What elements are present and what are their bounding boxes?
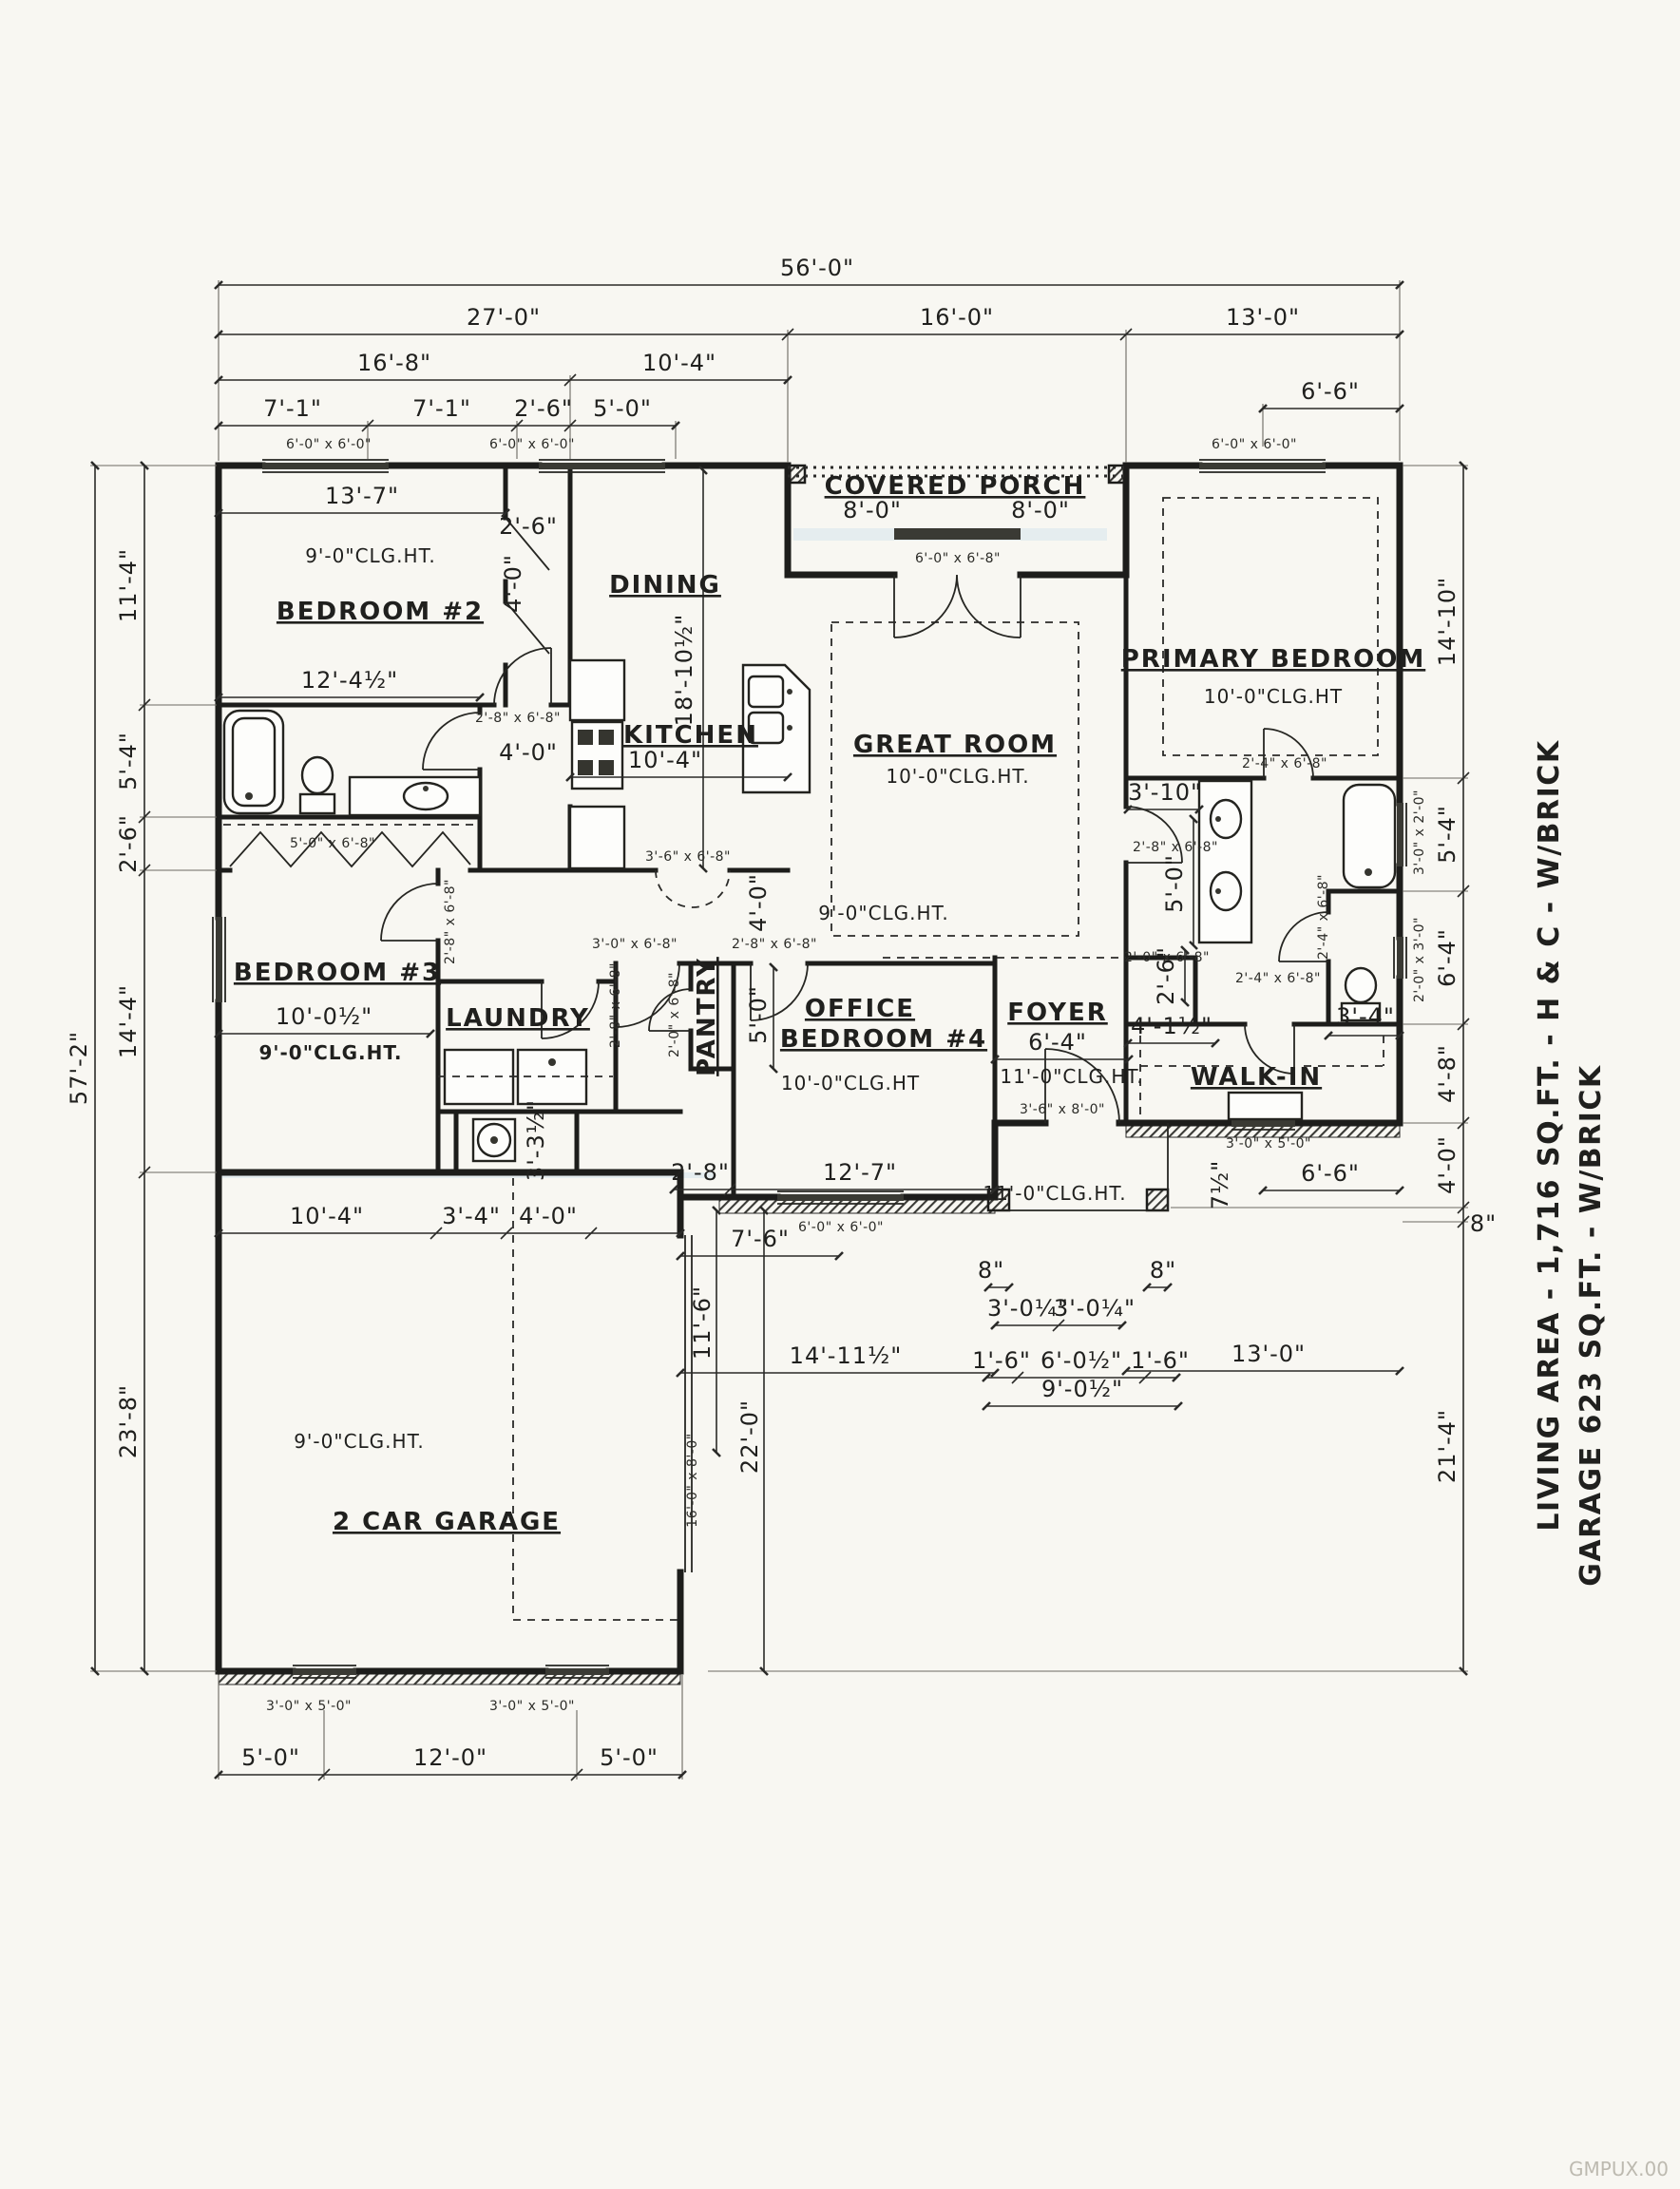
- plan-label: 27'-0": [467, 304, 541, 331]
- plan-label: 11'-0"CLG.HT.: [983, 1182, 1126, 1205]
- plan-label: WALK-IN: [1191, 1063, 1322, 1092]
- plan-label: 2'-8" x 6'-8": [608, 962, 623, 1048]
- plan-label: 12'-0": [413, 1744, 487, 1771]
- window: [1199, 460, 1326, 472]
- plan-label: LAUNDRY: [446, 1004, 590, 1033]
- double-vanity: [1199, 781, 1251, 942]
- plan-label: BEDROOM #4: [780, 1025, 987, 1054]
- plan-label: 4'-0": [1434, 1135, 1460, 1194]
- side-notes: LIVING AREA - 1,716 SQ.FT. - H & C - W/B…: [1533, 739, 1608, 1587]
- porch-door-header: [894, 528, 1021, 540]
- plan-label: 13'-7": [325, 483, 399, 509]
- kitchen-arch: [656, 870, 730, 907]
- plan-label: 4'-0": [499, 739, 558, 766]
- plan-label: KITCHEN: [623, 721, 758, 750]
- plan-label: 14'-11½": [790, 1342, 903, 1369]
- plan-label: 3'-10": [1128, 779, 1202, 806]
- plan-label: 11'-6": [689, 1285, 716, 1360]
- plan-label: 3'-4": [442, 1203, 501, 1229]
- plan-label: 2 CAR GARAGE: [333, 1508, 561, 1536]
- plan-label: PANTRY: [693, 957, 721, 1076]
- plan-label: 10'-4": [628, 747, 702, 773]
- plan-label: 8": [978, 1257, 1004, 1284]
- labels-layer: 56'-0"27'-0"16'-0"13'-0"16'-8"10'-4"6'-6…: [66, 255, 1497, 1771]
- plan-label: 8": [1470, 1210, 1497, 1237]
- plan-label: 2'-8" x 6'-8": [443, 879, 458, 964]
- plan-label: 3'-0" x 5'-0": [489, 1699, 575, 1714]
- plan-label: 3'-6" x 8'-0": [1020, 1102, 1105, 1117]
- plan-label: 16'-0" x 8'-0": [685, 1433, 700, 1527]
- window: [213, 917, 225, 1002]
- plan-label: PRIMARY BEDROOM: [1121, 645, 1425, 674]
- plan-label: 5'-4": [1434, 805, 1460, 864]
- plan-label: 16'-0": [920, 304, 994, 331]
- window-seat: [1229, 1093, 1302, 1119]
- plan-label: 21'-4": [1434, 1409, 1460, 1483]
- plan-label: 4'-0": [519, 1203, 578, 1229]
- plan-label: 16'-8": [357, 350, 431, 376]
- plan-label: 5'-0" x 6'-8": [290, 836, 375, 851]
- plan-label: 2'-8" x 6'-8": [1133, 840, 1218, 855]
- plan-label: 4'-8": [1434, 1044, 1460, 1103]
- plan-label: 9'-0½": [1041, 1376, 1123, 1402]
- floor-plan-svg: 56'-0"27'-0"16'-0"13'-0"16'-8"10'-4"6'-6…: [0, 0, 1680, 2189]
- plan-label: 11'-4": [115, 548, 142, 622]
- plan-label: 5'-4": [115, 732, 142, 790]
- plan-label: 13'-0": [1231, 1341, 1306, 1367]
- plan-label: 11'-0"CLG.HT.: [1000, 1065, 1143, 1088]
- plan-label: 2'-6": [499, 513, 558, 540]
- plan-label: 5'-0": [745, 985, 772, 1044]
- plan-label: 6'-0" x 6'-0": [489, 437, 575, 452]
- plan-label: 6'-6": [1301, 378, 1360, 405]
- plan-label: 6'-4": [1434, 928, 1460, 987]
- plan-label: 3'-4": [1336, 1003, 1395, 1030]
- kitchen-cabinet: [570, 807, 624, 868]
- plan-label: 10'-0"CLG.HT.: [886, 765, 1029, 788]
- plan-label: 8'-0": [1011, 497, 1070, 523]
- plan-label: 2'-8" x 6'-8": [732, 937, 817, 952]
- plan-label: 10'-0"CLG.HT: [781, 1072, 920, 1094]
- plan-label: 6'-6": [1301, 1160, 1360, 1187]
- stoop-column: [1147, 1190, 1168, 1210]
- plan-label: 2'-6": [514, 395, 573, 422]
- washer-dryer: [438, 1050, 613, 1104]
- plan-label: 3'-3½": [523, 1099, 549, 1181]
- plan-label: 13'-0": [1226, 304, 1300, 331]
- plan-label: 18'-10½": [671, 614, 697, 727]
- plan-label: 10'-0½": [276, 1003, 372, 1030]
- plan-label: 5'-0": [600, 1744, 659, 1771]
- plan-label: 2'-8": [671, 1159, 730, 1186]
- plan-label: 57'-2": [66, 1031, 92, 1105]
- scanned-floor-plan-page: 56'-0"27'-0"16'-0"13'-0"16'-8"10'-4"6'-6…: [0, 0, 1680, 2189]
- plan-label: 10'-4": [642, 350, 716, 376]
- water-heater: [473, 1119, 515, 1161]
- plan-label: 1'-6": [1131, 1347, 1190, 1374]
- plan-label: 2'-4" x 6'-8": [1235, 971, 1321, 986]
- plan-label: 8'-0": [843, 497, 902, 523]
- bathtub: [224, 711, 283, 813]
- plan-label: 2'-4" x 6'-8": [1242, 756, 1327, 771]
- plan-label: 6'-0" x 6'-0": [798, 1220, 884, 1235]
- plan-label: 3'-0" x 5'-0": [266, 1699, 352, 1714]
- plan-label: 6'-0½": [1040, 1347, 1122, 1374]
- plan-label: 8": [1150, 1257, 1176, 1284]
- plan-label: 3'-0" x 5'-0": [1226, 1136, 1311, 1152]
- hall-bath-door: [423, 713, 480, 770]
- plan-label: 9'-0"CLG.HT.: [294, 1430, 425, 1453]
- plan-label: 7'-1": [263, 395, 322, 422]
- plan-label: 12'-4½": [301, 667, 398, 694]
- plan-label: GREAT ROOM: [853, 731, 1057, 759]
- side-note-living-area: LIVING AREA - 1,716 SQ.FT. - H & C - W/B…: [1533, 739, 1566, 1531]
- plan-label: 56'-0": [780, 255, 854, 281]
- plan-label: 6'-0" x 6'-0": [286, 437, 372, 452]
- plan-label: 2'-0" x 3'-0": [1412, 917, 1427, 1002]
- plan-label: 3'-0" x 6'-8": [592, 937, 678, 952]
- plan-label: 7'-6": [731, 1226, 790, 1252]
- plan-label: BEDROOM #2: [277, 598, 484, 626]
- garage-attic-line: [513, 1178, 678, 1620]
- plan-label: 5'-0": [241, 1744, 300, 1771]
- plan-label: 5'-0": [1161, 854, 1188, 913]
- plan-label: 6'-0" x 6'-0": [1212, 437, 1297, 452]
- plan-label: 9'-0"CLG.HT.: [258, 1041, 402, 1064]
- primary-tray: [1163, 498, 1378, 755]
- plan-label: BEDROOM #3: [234, 959, 441, 987]
- plan-label: 7'-1": [412, 395, 471, 422]
- plan-label: 3'-0" x 2'-0": [1412, 790, 1427, 875]
- plan-label: FOYER: [1007, 999, 1108, 1027]
- plan-label: 14'-10": [1434, 577, 1460, 666]
- window: [539, 460, 665, 472]
- toilet: [300, 757, 334, 813]
- plan-label: 6'-0" x 6'-8": [915, 551, 1001, 566]
- plan-label: 5'-0": [593, 395, 652, 422]
- side-note-garage-area: GARAGE 623 SQ.FT. - W/BRICK: [1575, 1064, 1608, 1587]
- plan-label: 9'-0"CLG.HT.: [818, 902, 949, 924]
- plan-label: 4'-0": [500, 554, 526, 613]
- plan-label: 10'-0"CLG.HT: [1204, 685, 1343, 708]
- plan-label: 7½": [1207, 1160, 1233, 1210]
- primary-tub: [1344, 785, 1395, 887]
- plan-label: 2'-0" x 6'-8": [1124, 950, 1210, 965]
- plan-label: 4'-0": [745, 873, 772, 932]
- bedroom2-door: [494, 648, 551, 705]
- plan-label: 2'-8" x 6'-8": [475, 711, 561, 726]
- plan-label: 6'-4": [1028, 1029, 1087, 1056]
- plan-label: 4'-1½": [1131, 1013, 1212, 1039]
- plan-label: 22'-0": [736, 1399, 763, 1474]
- vanity-sink: [350, 777, 480, 815]
- plan-label: 3'-0¼": [1054, 1295, 1136, 1322]
- watermark: GMPUX.00: [1569, 2158, 1669, 2180]
- plan-label: 9'-0"CLG.HT.: [305, 544, 436, 567]
- plan-label: 12'-7": [823, 1159, 897, 1186]
- plan-label: OFFICE: [805, 995, 915, 1023]
- porch-double-door: [894, 575, 1021, 638]
- range: [572, 722, 622, 789]
- bedroom3-door: [381, 884, 438, 941]
- refrigerator: [570, 660, 624, 720]
- plan-label: 10'-4": [290, 1203, 364, 1229]
- plan-label: 2'-0" x 6'-8": [667, 972, 682, 1057]
- plan-label: 2'-6": [115, 814, 142, 873]
- plan-label: DINING: [609, 571, 721, 600]
- window: [1394, 937, 1406, 979]
- plan-label: 23'-8": [115, 1384, 142, 1458]
- plan-label: 3'-6" x 6'-8": [645, 849, 731, 865]
- window: [262, 460, 389, 472]
- plan-label: 14'-4": [115, 984, 142, 1058]
- plan-label: COVERED PORCH: [825, 472, 1086, 501]
- plan-label: 1'-6": [972, 1347, 1031, 1374]
- plan-label: 2'-4" x 6'-8": [1316, 874, 1331, 960]
